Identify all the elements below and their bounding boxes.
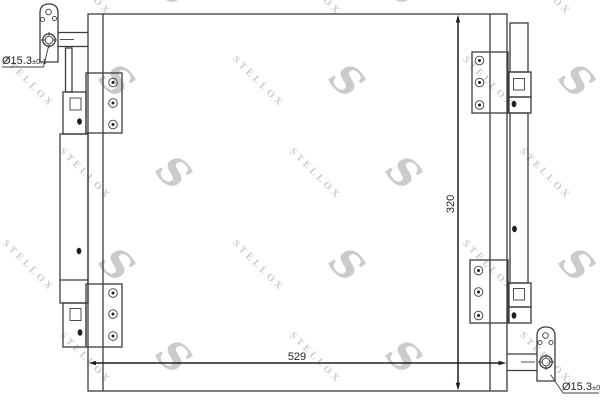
arrow-left-icon xyxy=(89,361,96,365)
bolt-hole xyxy=(475,78,484,87)
pin-hole xyxy=(512,226,517,232)
flange-hole xyxy=(538,340,542,344)
arrow-right-icon xyxy=(499,361,507,365)
rail-plate xyxy=(509,72,531,97)
rail-strip xyxy=(510,23,528,72)
bolt-hole xyxy=(475,101,484,110)
square-hole xyxy=(70,309,81,321)
pin-hole xyxy=(77,118,82,124)
arrow-up-icon xyxy=(456,15,460,23)
bolt-hole xyxy=(109,332,118,341)
rail-strip xyxy=(60,134,88,303)
condenser-drawing: 529 320 xyxy=(0,0,600,400)
square-hole xyxy=(514,289,525,301)
pin-hole xyxy=(512,101,517,107)
square-hole xyxy=(70,98,81,110)
arrow-down-icon xyxy=(456,383,460,391)
inlet-fitting: Ø15.3±0.1 xyxy=(2,4,88,67)
outlet-port xyxy=(538,354,554,370)
inlet-port xyxy=(41,32,57,48)
inlet-diameter-label: Ø15.3±0.1 xyxy=(2,55,47,67)
bolt-hole xyxy=(474,288,483,297)
flange-hole xyxy=(543,333,549,339)
outlet-fitting: Ø15.3±0.1 xyxy=(507,327,600,393)
bolt-hole xyxy=(109,310,118,319)
square-hole xyxy=(514,79,525,91)
bolt-hole xyxy=(109,289,118,298)
flange-hole xyxy=(549,340,553,344)
left-mounting-rail xyxy=(60,48,88,347)
outlet-diameter-label: Ø15.3±0.1 xyxy=(562,381,600,393)
flange-hole xyxy=(46,9,52,15)
bolt-hole xyxy=(109,120,118,129)
bolt-hole xyxy=(109,78,118,87)
pin-hole xyxy=(77,248,82,254)
bolt-hole xyxy=(474,266,483,275)
flange-hole xyxy=(40,17,44,21)
right-mounting-rail xyxy=(509,23,531,323)
dimension-width: 529 xyxy=(89,351,507,365)
rail-neck xyxy=(66,48,73,92)
bolt-hole xyxy=(475,56,484,65)
rail-plate xyxy=(63,303,86,347)
technical-drawing: SSTELLOXSSTELLOXSSTELLOXSTELLOXSSTELLOXS… xyxy=(0,0,600,400)
bolt-hole xyxy=(109,99,118,108)
dim-width-label: 529 xyxy=(288,351,306,363)
dim-height-label: 320 xyxy=(445,195,457,213)
bracket-bottom-right xyxy=(470,260,508,323)
bolt-hole xyxy=(474,311,483,320)
bracket-top-left xyxy=(86,73,122,133)
pin-hole xyxy=(78,329,83,335)
flange-hole xyxy=(52,16,56,20)
dimension-height: 320 xyxy=(445,15,460,391)
rail-strip xyxy=(510,113,528,283)
pin-hole xyxy=(512,312,517,318)
bracket-bottom-left xyxy=(86,284,122,347)
rail-plate xyxy=(509,283,531,307)
